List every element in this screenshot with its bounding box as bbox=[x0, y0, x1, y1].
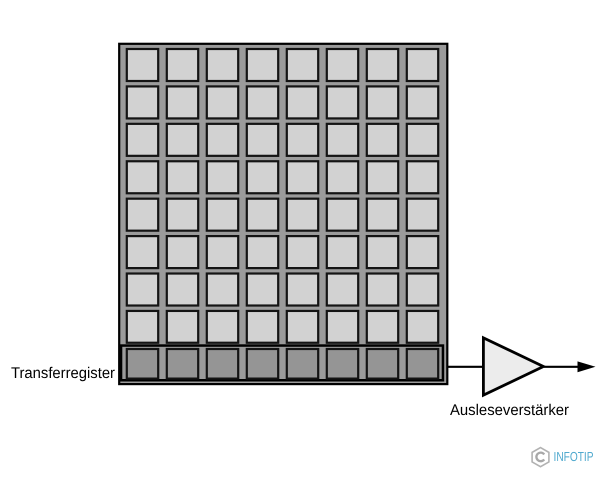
svg-text:Ausleseverstärker: Ausleseverstärker bbox=[450, 402, 569, 419]
svg-text:Transferregister: Transferregister bbox=[11, 365, 115, 382]
svg-text:INFOTIP: INFOTIP bbox=[554, 449, 594, 464]
